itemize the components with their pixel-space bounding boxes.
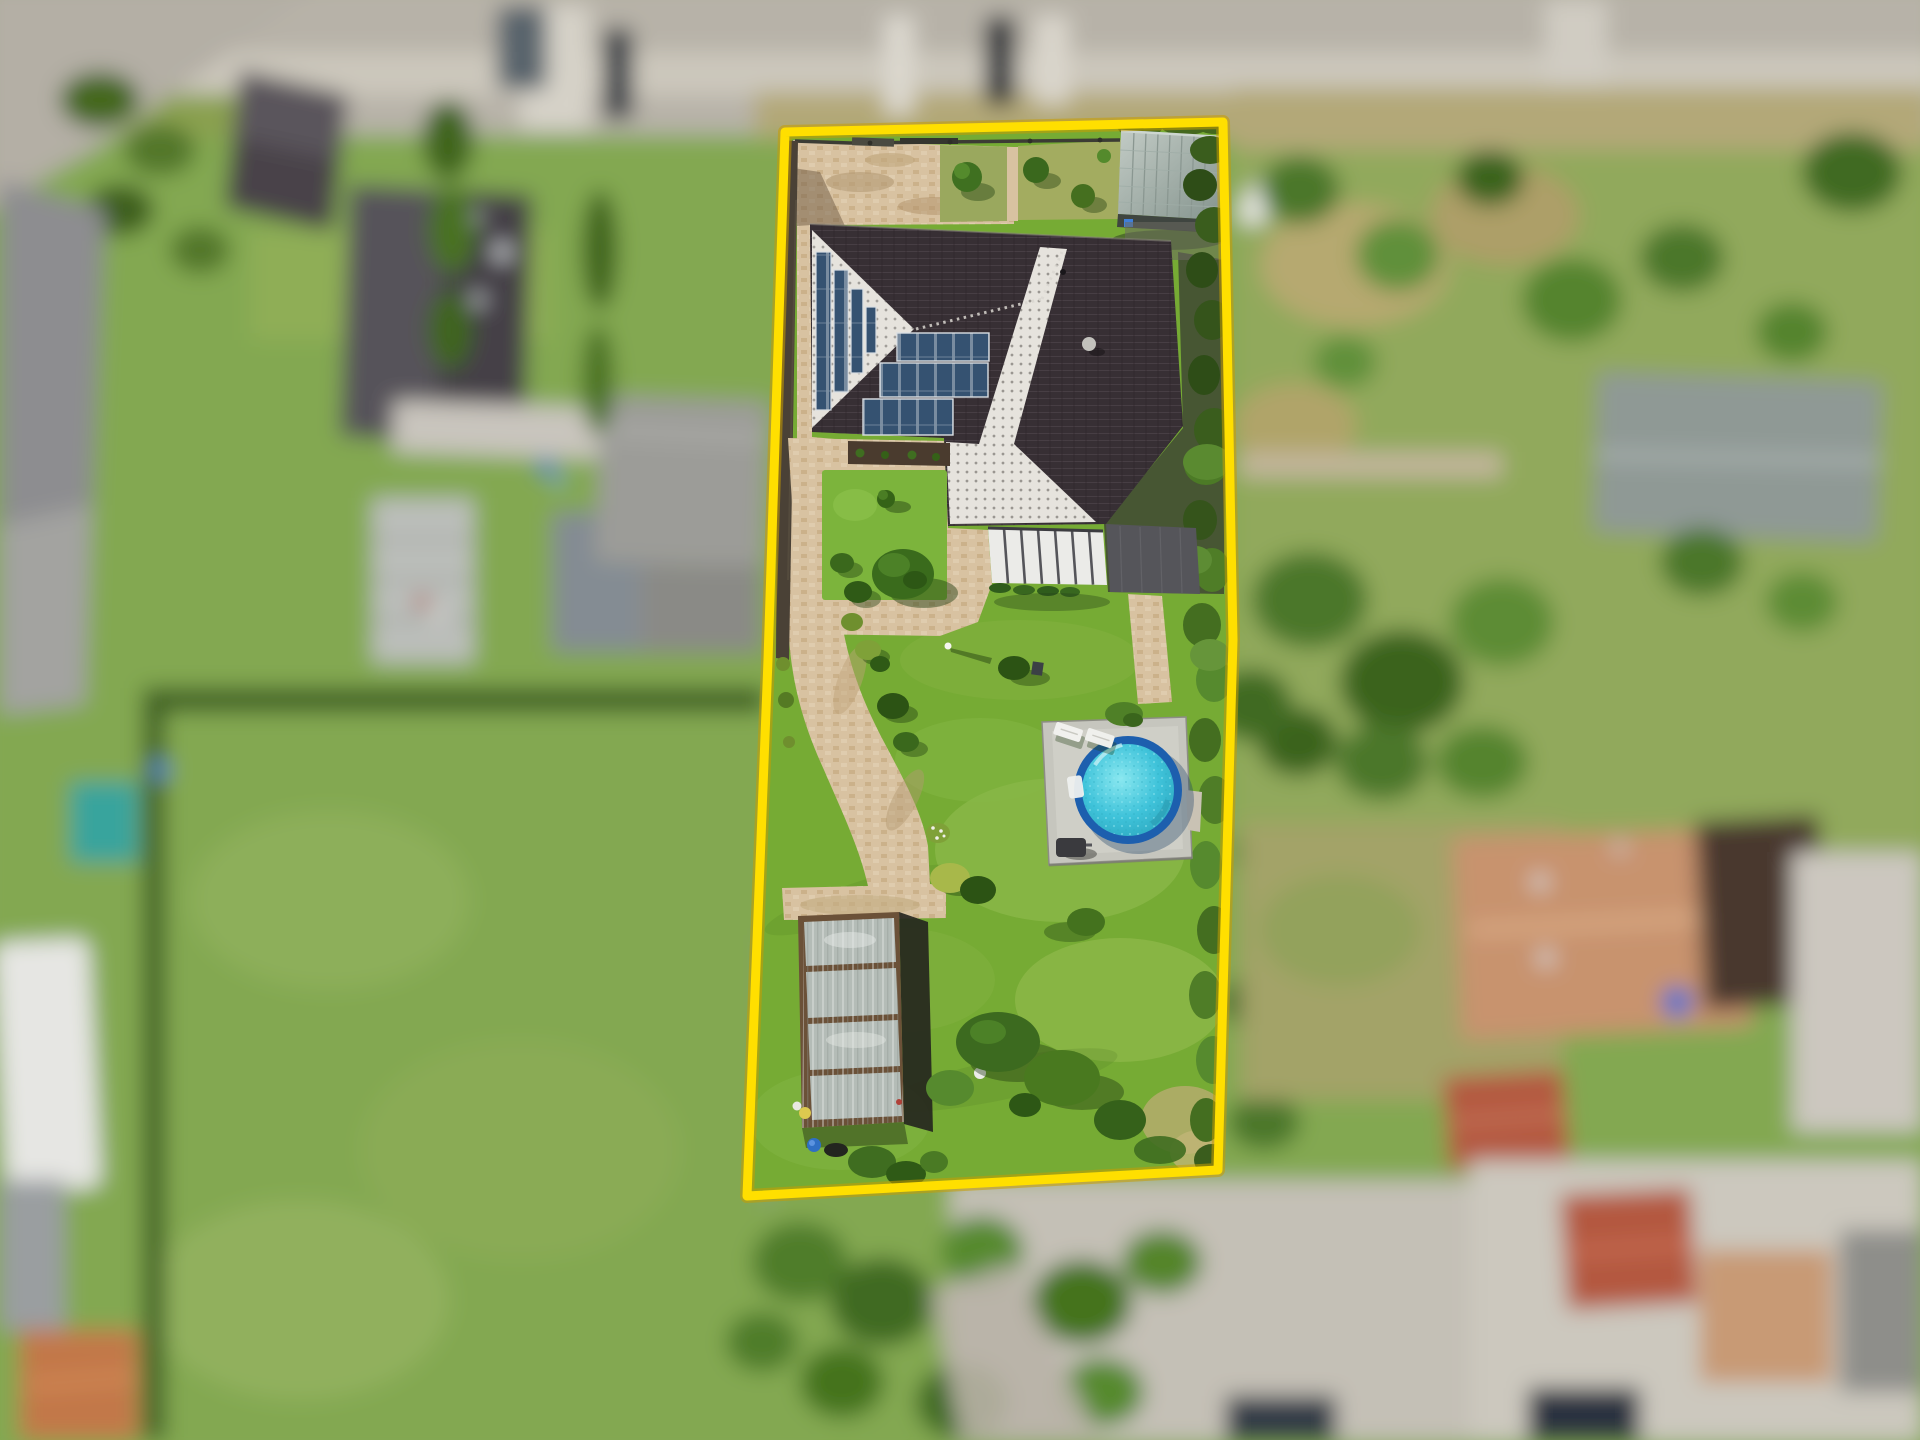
neighbor-garage-left [0, 180, 105, 525]
garden-light [945, 643, 952, 650]
aerial-photo [0, 0, 1920, 1440]
roof-vent [1060, 269, 1066, 275]
dark-bush [998, 656, 1030, 680]
caravan [0, 938, 101, 1193]
yellow-chair [799, 1107, 811, 1119]
front-bush [1023, 157, 1049, 183]
teal-tarp [70, 782, 138, 862]
lawn-tree [1067, 908, 1105, 936]
flowering-bush [926, 823, 950, 843]
parked-van [497, 6, 547, 90]
gardens-right [1212, 88, 1920, 1170]
mower [824, 1143, 848, 1157]
greenhouse-shadow-side [899, 912, 933, 1132]
greenhouse [793, 912, 934, 1157]
parcel [747, 117, 1234, 1196]
parked-car [603, 28, 633, 120]
driveway-apron [884, 16, 914, 114]
front-bush [1071, 184, 1095, 208]
bin [1031, 661, 1044, 675]
driveway-apron [1545, 0, 1607, 100]
parked-car [985, 16, 1015, 106]
driveway-area [793, 137, 1122, 227]
pool-ladder [1067, 775, 1085, 799]
satellite-dish [1082, 337, 1096, 351]
gate [852, 137, 894, 146]
blue-pool-toy [1662, 987, 1692, 1017]
driveway-apron [1035, 16, 1069, 104]
grey-shed [0, 1180, 65, 1330]
grill [1056, 838, 1086, 857]
pool-area [1042, 702, 1202, 865]
neighbor-roof-grey [595, 395, 769, 567]
garden-chair [793, 1102, 802, 1111]
